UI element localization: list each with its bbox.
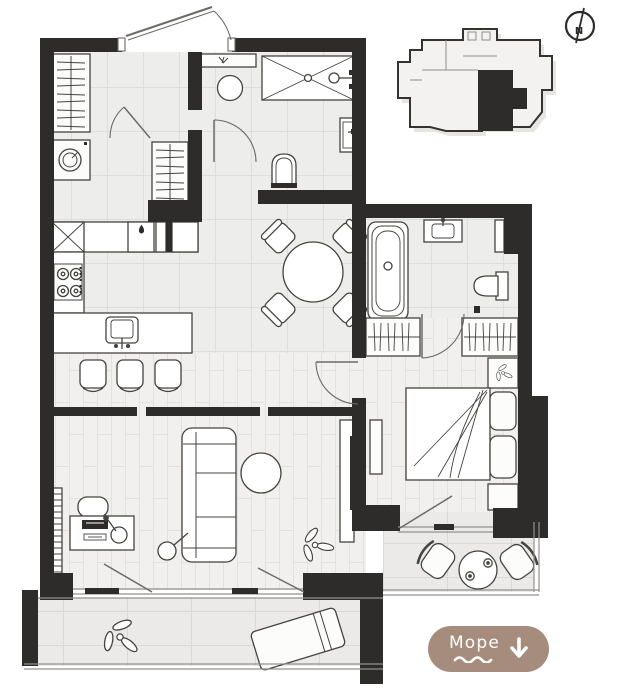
bath-cabinet <box>495 220 504 252</box>
dining-table <box>283 242 343 302</box>
shower-tray <box>262 56 354 100</box>
nightstand-top <box>488 358 518 388</box>
bedroom-wardrobe-right <box>462 318 518 356</box>
oven <box>128 222 154 252</box>
keyboard <box>84 534 106 540</box>
waves-icon <box>453 654 497 663</box>
compass-label: N <box>575 26 583 37</box>
sea-button-label: Море <box>449 635 500 652</box>
desk <box>70 516 134 550</box>
bathtub <box>368 222 408 320</box>
sofa <box>182 428 236 562</box>
pillow <box>490 436 516 478</box>
bar-stool <box>117 360 143 392</box>
partition-track <box>52 407 360 416</box>
bedroom-dresser <box>370 420 382 474</box>
pillow <box>490 392 516 430</box>
mini-locator-plan[interactable] <box>398 29 556 136</box>
gas-hob <box>54 264 82 300</box>
sea-button-text: Море <box>449 635 500 663</box>
desk-chair <box>78 497 108 517</box>
bar-stool <box>155 360 181 392</box>
hall-wardrobe <box>52 54 90 132</box>
bedroom-wardrobe-left <box>366 318 420 356</box>
toilet <box>271 154 297 188</box>
hall-wardrobe-2 <box>152 142 188 208</box>
tv-console <box>340 420 354 542</box>
bar-stool <box>80 360 106 392</box>
compass-icon: N <box>566 8 594 43</box>
arrow-down-icon <box>510 636 528 663</box>
sea-button[interactable]: Море <box>428 626 549 672</box>
floor-plan: N <box>0 0 617 700</box>
toilet-brush <box>474 306 480 313</box>
bar-stools <box>80 360 181 392</box>
coffee-table <box>241 453 281 493</box>
balcony-table <box>459 551 497 589</box>
kitchen-cabinet-narrow <box>156 222 166 252</box>
kitchen-cabinet <box>172 222 198 252</box>
fridge <box>52 222 84 252</box>
nightstand-bottom <box>488 484 518 510</box>
entry-door <box>118 7 235 51</box>
laptop <box>82 520 108 529</box>
counter-left <box>52 252 84 313</box>
washing-machine <box>52 140 90 180</box>
kitchen-island <box>52 313 192 353</box>
vanity-sink <box>424 218 462 242</box>
floor-plan-page: N <box>0 0 617 700</box>
round-basin <box>218 76 243 101</box>
